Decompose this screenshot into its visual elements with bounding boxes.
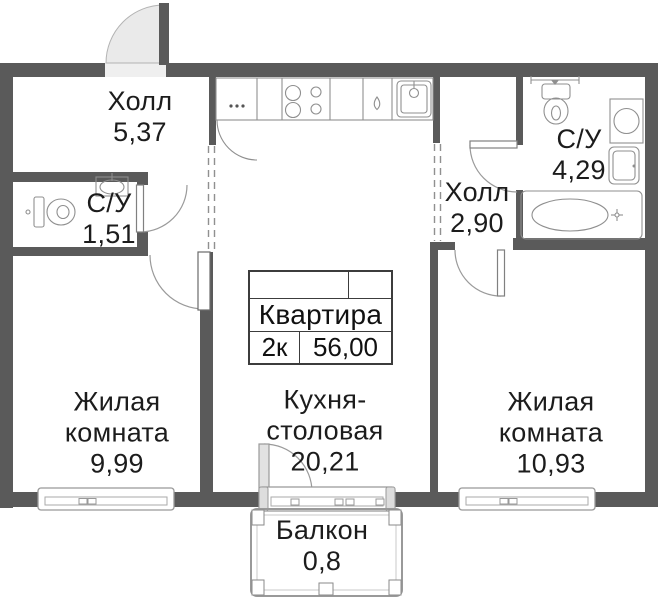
- room-area: 0,8: [276, 546, 368, 577]
- kitchen-sink-icon: [397, 81, 431, 117]
- room-label-hall-1: Холл 5,37: [108, 86, 173, 148]
- table-empty-cell: [349, 272, 391, 298]
- window-icon: [38, 488, 174, 510]
- dishwasher-icon: [374, 97, 380, 110]
- wall-segment: [430, 242, 438, 497]
- open-boundary-dashes: [209, 144, 441, 251]
- room-name: Холл: [108, 86, 173, 117]
- wall-segment: [645, 63, 658, 507]
- wall-segment: [0, 63, 13, 508]
- table-header-row: [250, 272, 391, 299]
- door-leaf: [198, 252, 210, 310]
- door-leaf: [498, 250, 505, 296]
- wall-segment: [516, 77, 523, 145]
- room-name: Жилая комната: [475, 387, 627, 449]
- door-arc: [455, 250, 501, 296]
- window-icon: [459, 488, 595, 510]
- room-area: 5,37: [108, 117, 173, 148]
- bathtub-icon: [521, 191, 642, 239]
- door-leaf: [137, 185, 144, 232]
- room-label-bath-2: С/У 4,29: [552, 124, 606, 186]
- door-arc: [140, 185, 187, 232]
- room-name: Балкон: [276, 515, 368, 546]
- wall-segment: [137, 172, 148, 185]
- room-area: 1,51: [82, 219, 136, 250]
- balcony-window-icon: [259, 487, 395, 511]
- toilet-icon: [26, 197, 75, 227]
- total-area-cell: 56,00: [300, 332, 391, 363]
- rooms-count-cell: 2к: [250, 332, 300, 363]
- room-label-kitchen: Кухня-столовая 20,21: [255, 385, 395, 478]
- room-name: Кухня-столовая: [255, 385, 395, 447]
- washing-machine-icon: [610, 99, 643, 143]
- entrance-door-icon: [104, 3, 169, 77]
- table-bottom-row: 2к 56,00: [250, 332, 391, 363]
- room-area: 2,90: [445, 208, 510, 239]
- wall-segment: [209, 77, 216, 145]
- room-area: 9,99: [41, 449, 193, 480]
- floor-plan: Холл 5,37 С/У 1,51 Холл 2,90 С/У 4,29 Жи…: [0, 0, 658, 600]
- wall-segment: [166, 63, 658, 77]
- room-label-bath-1: С/У 1,51: [82, 188, 136, 250]
- room-label-balcony: Балкон 0,8: [276, 515, 368, 577]
- door-arc: [150, 255, 204, 309]
- wall-segment: [513, 238, 658, 250]
- wall-segment: [433, 77, 440, 143]
- room-name: Жилая комната: [41, 387, 193, 449]
- fridge-icon: [217, 104, 257, 160]
- room-label-living-1: Жилая комната 9,99: [41, 387, 193, 480]
- apartment-title-cell: Квартира: [250, 299, 391, 332]
- room-label-hall-2: Холл 2,90: [445, 177, 510, 239]
- stove-icon: [286, 86, 322, 118]
- door-leaf: [470, 141, 517, 148]
- room-name: С/У: [82, 188, 136, 219]
- bathroom-sink-icon: [609, 147, 639, 184]
- room-area: 4,29: [552, 155, 606, 186]
- apartment-info-table: Квартира 2к 56,00: [248, 270, 393, 365]
- toilet-icon: [531, 76, 579, 124]
- room-name: Холл: [445, 177, 510, 208]
- room-area: 20,21: [255, 447, 395, 478]
- wall-segment: [137, 232, 148, 256]
- room-label-living-2: Жилая комната 10,93: [475, 387, 627, 480]
- table-empty-cell: [250, 272, 349, 298]
- wall-segment: [0, 63, 105, 77]
- room-area: 10,93: [475, 449, 627, 480]
- room-name: С/У: [552, 124, 606, 155]
